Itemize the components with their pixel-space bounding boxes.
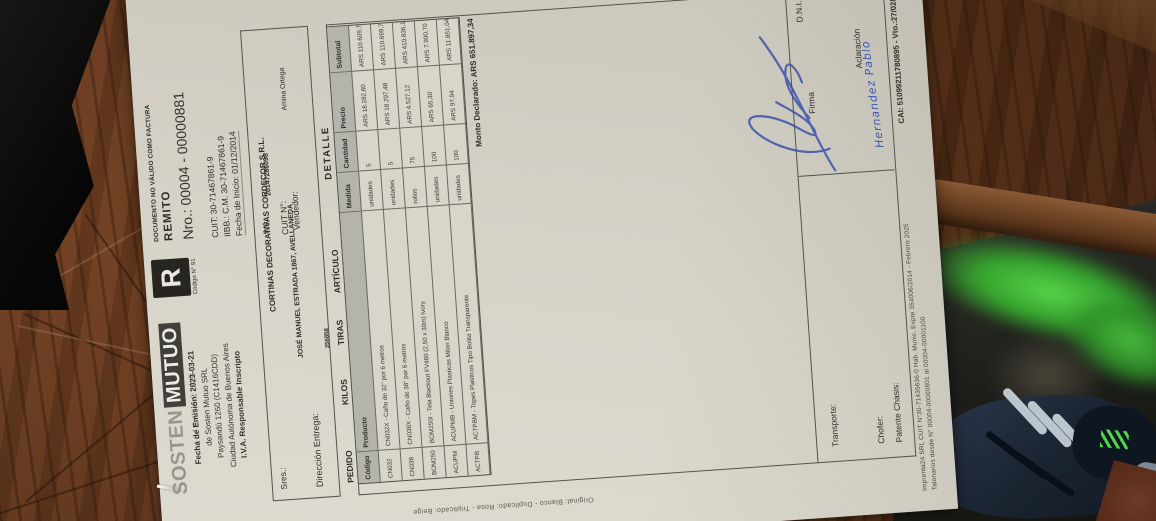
logo-text-sosten: SOSTEN bbox=[164, 409, 192, 496]
chofer-label: Chofer: bbox=[874, 416, 886, 445]
iva-label: IVA: bbox=[260, 218, 271, 234]
item-cantidad: 75 bbox=[400, 126, 425, 167]
pen-signature bbox=[731, 23, 844, 185]
dni-label: D.N.I. bbox=[793, 0, 804, 22]
item-codigo: CN032 bbox=[379, 448, 403, 481]
issuer-block: SOSTENMUTUO interacción Fecha de Emisión… bbox=[158, 308, 252, 505]
not-valid-notice: DOCUMENTO NO VÁLIDO COMO FACTURA bbox=[144, 104, 161, 242]
form-code: Código N° 91 bbox=[190, 244, 200, 308]
item-subtotal: ARS 410.836,14 bbox=[393, 21, 418, 67]
photo-scene: Original: Blanco - Duplicado: Rosa - Tri… bbox=[0, 0, 1156, 521]
articulo-header: ARTÍCULO bbox=[330, 249, 343, 294]
copy-colors-edge-note: Original: Blanco - Duplicado: Rosa - Tri… bbox=[373, 493, 633, 518]
item-cantidad: 100 bbox=[444, 123, 469, 164]
col-header-codigo: Código bbox=[357, 450, 381, 483]
item-subtotal: ARS 110.699,73 bbox=[371, 23, 396, 69]
customer-box: Sres.: CORTINAS DECORATIVAS CORDECOR S.R… bbox=[240, 26, 341, 502]
col-header-subtotal: Subtotal bbox=[327, 26, 352, 72]
item-cantidad: 100 bbox=[422, 124, 447, 165]
col-header-cantidad: Cantidad bbox=[334, 131, 359, 172]
form-title: REMITO bbox=[160, 190, 175, 241]
pedido-number: 256858 bbox=[324, 328, 331, 348]
vendedor-value: Amina Ortega bbox=[279, 67, 289, 111]
sneaker-logo-mark bbox=[1100, 429, 1129, 449]
item-medida: unidades bbox=[359, 169, 384, 210]
item-codigo: BOM250 bbox=[422, 445, 446, 478]
item-subtotal: ARS 7.900,70 bbox=[415, 20, 440, 66]
kilos-header: KILOS bbox=[339, 379, 351, 406]
logo-text-mutuo: MUTUO bbox=[158, 322, 186, 407]
pedido-header: PEDIDO bbox=[344, 450, 356, 483]
item-codigo: ACUPM bbox=[444, 444, 468, 477]
item-medida: rollos bbox=[403, 166, 428, 207]
item-medida: unidades bbox=[425, 164, 450, 205]
item-medida: unidades bbox=[381, 167, 406, 208]
item-subtotal: ARS 11.851,04 bbox=[437, 18, 462, 64]
item-subtotal: ARS 110.609,73 bbox=[349, 24, 374, 70]
col-header-medida: Medida bbox=[337, 171, 362, 212]
item-codigo: CN038 bbox=[401, 447, 425, 480]
detalle-header: DETALLE bbox=[320, 126, 335, 180]
item-medida: unidades bbox=[447, 163, 472, 204]
paper-remito: Original: Blanco - Duplicado: Rosa - Tri… bbox=[125, 0, 958, 521]
item-codigo: ACTPB bbox=[466, 442, 490, 475]
item-cantidad: 5 bbox=[356, 129, 381, 170]
remito-number: Nro.: 00004 - 00000881 bbox=[170, 92, 196, 241]
item-precio: ARS 97,94 bbox=[440, 63, 466, 124]
item-cantidad: 5 bbox=[378, 128, 403, 169]
delivery-address-label: Dirección Entrega: bbox=[310, 413, 325, 488]
sres-label: Sres.: bbox=[278, 467, 290, 490]
form-letter-box: R bbox=[151, 258, 192, 299]
tiras-header: TIRAS bbox=[334, 319, 346, 345]
